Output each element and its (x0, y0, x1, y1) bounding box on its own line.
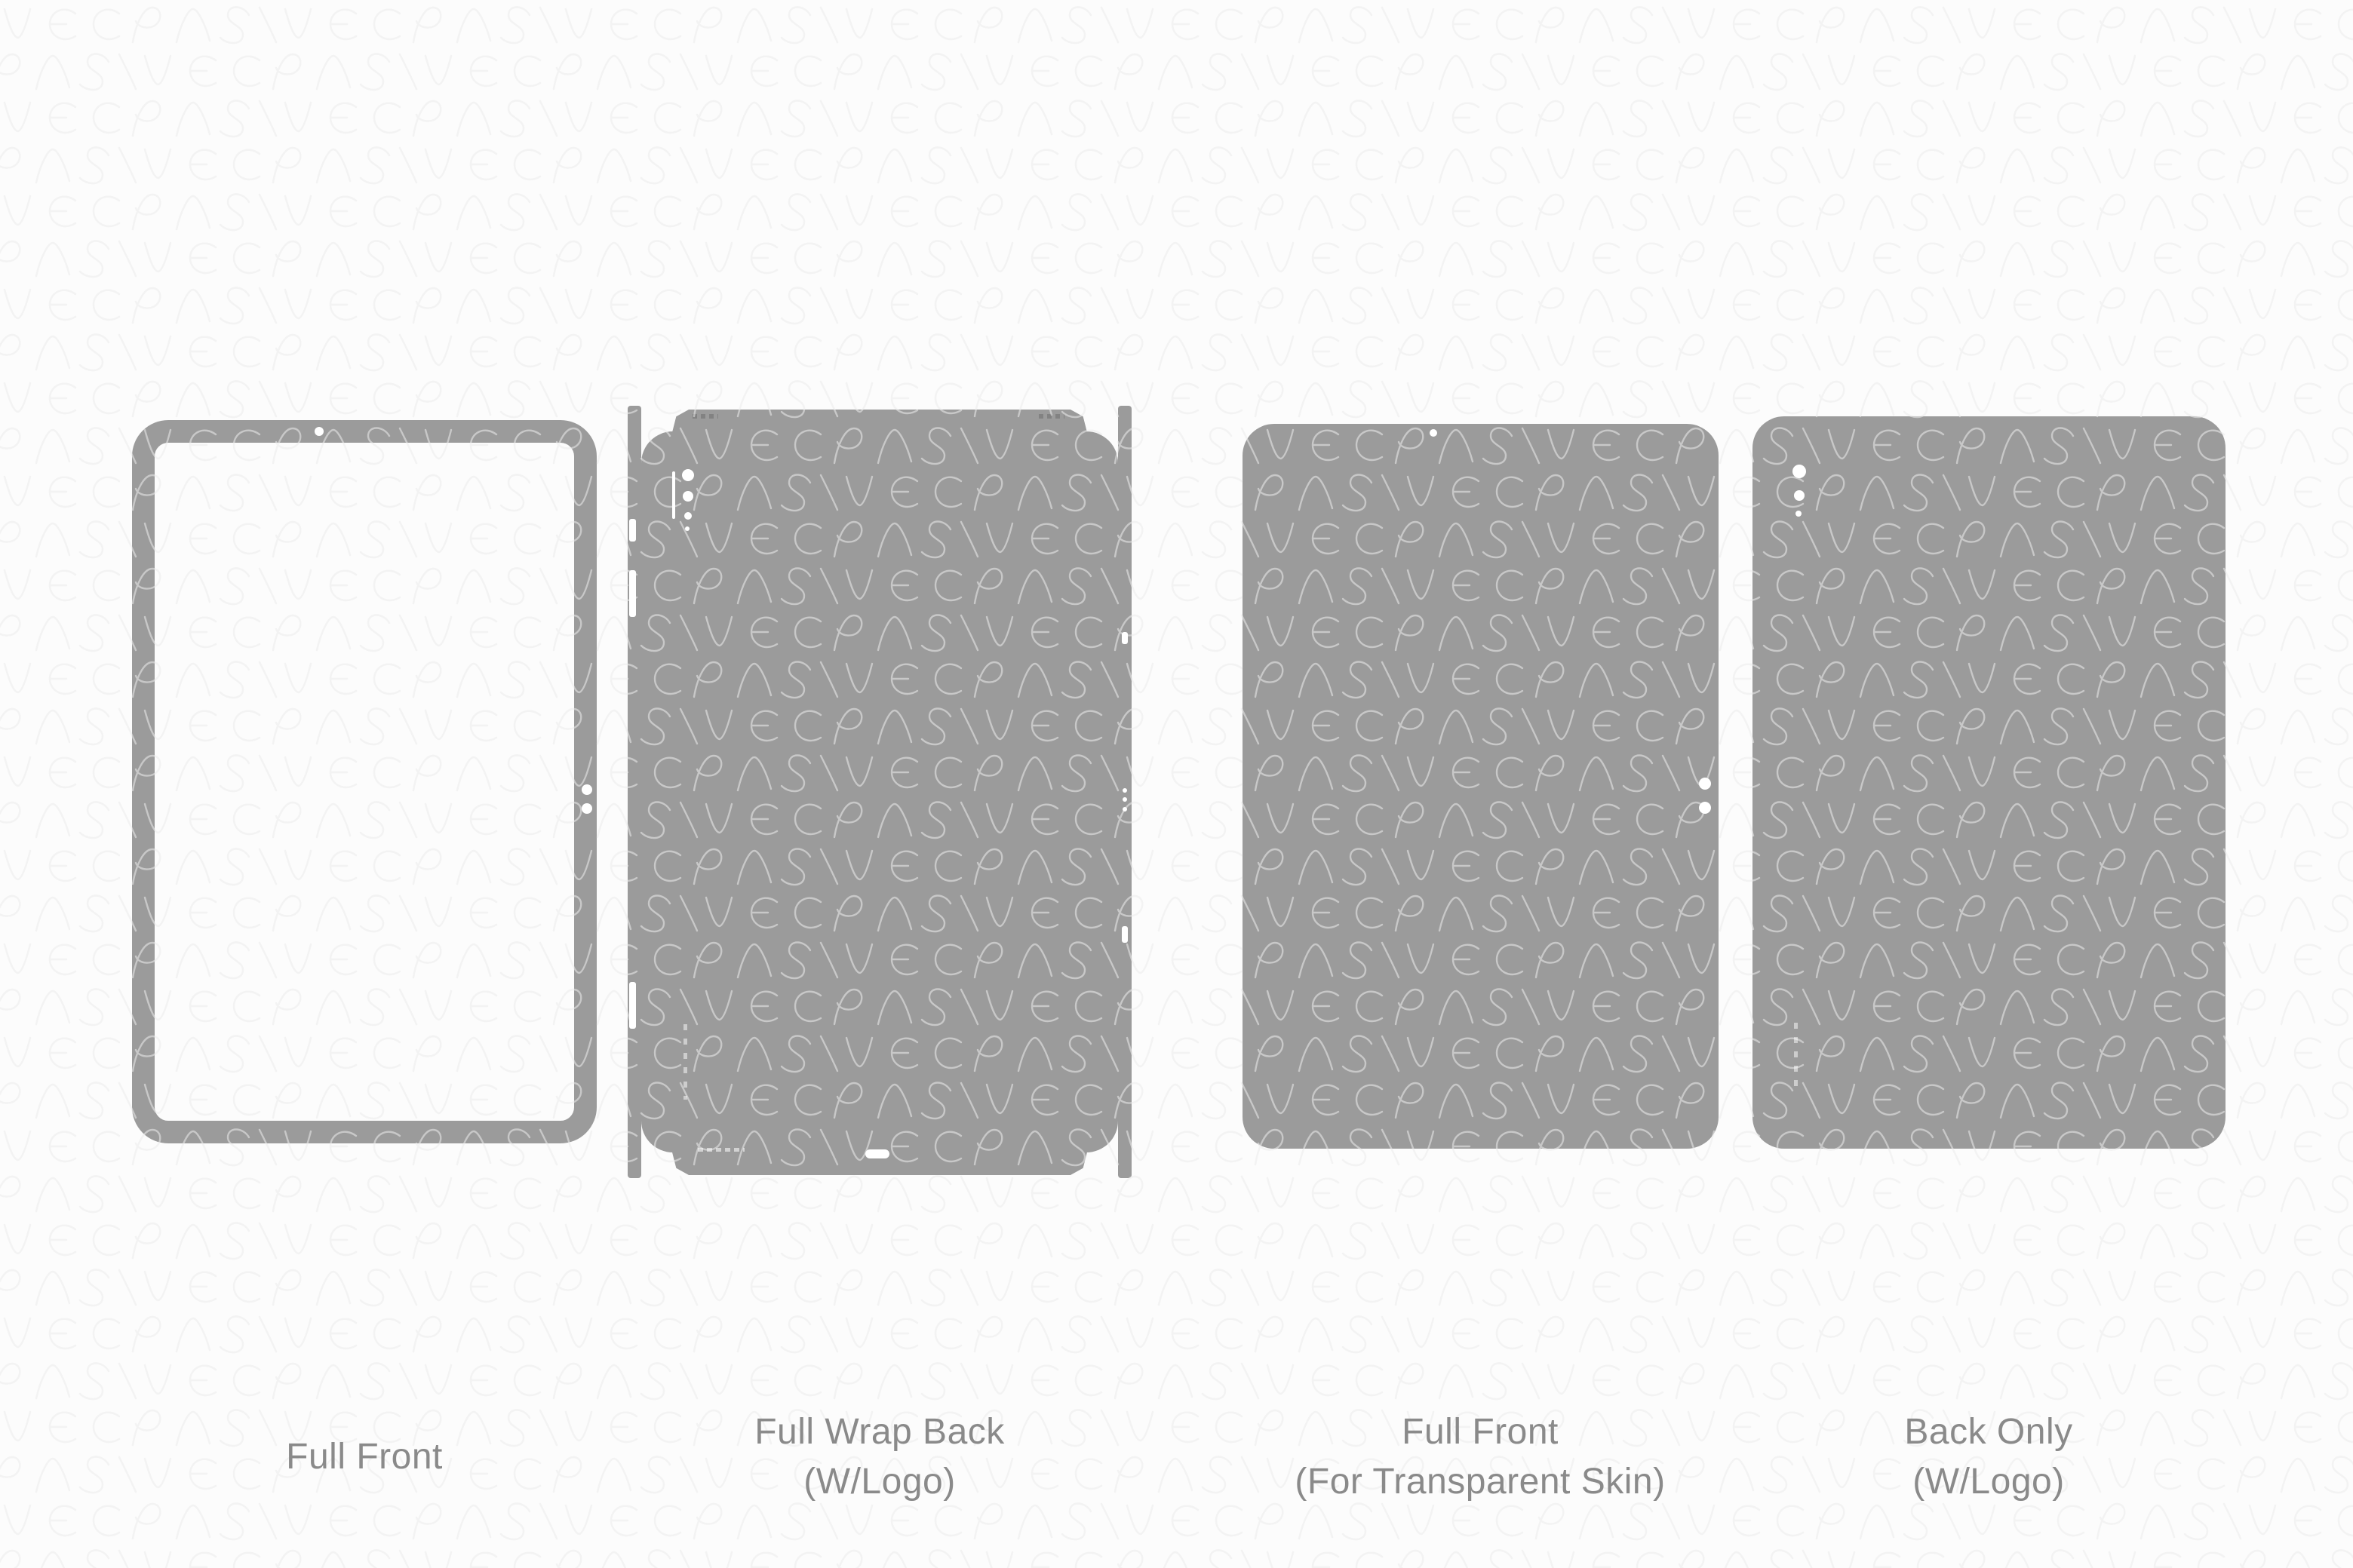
engraving-marks-vertical (1794, 1023, 1798, 1094)
right-strip-dot-2 (1123, 797, 1127, 802)
template-back-only (1752, 416, 2226, 1149)
charging-port-cutout (865, 1149, 889, 1158)
side-button-cutout-bottom (582, 803, 592, 814)
engraving-marks-bottom (698, 1148, 745, 1152)
rear-camera-cutout-3 (684, 512, 692, 520)
caption-full-front-transparent: Full Front (For Transparent Skin) (1193, 1401, 1767, 1513)
caption-full-wrap-back: Full Wrap Back (W/Logo) (593, 1401, 1166, 1513)
caption-line-1: Full Front (1402, 1407, 1559, 1457)
template-full-front-transparent (1243, 424, 1719, 1149)
engraving-marks-vertical (683, 1024, 687, 1100)
side-button-cutout-top (582, 784, 592, 795)
rear-mic-cutout (685, 526, 690, 531)
caption-line-1: Back Only (1904, 1407, 2072, 1457)
caption-line-2: (For Transparent Skin) (1295, 1457, 1665, 1507)
rear-mic-cutout (1795, 511, 1802, 517)
caption-line-2: (W/Logo) (803, 1457, 955, 1507)
front-panel-body (1243, 424, 1719, 1149)
right-strip-slot-1 (1122, 632, 1128, 644)
back-panel-body (1752, 416, 2226, 1149)
side-button-cutout-bottom (1699, 802, 1711, 814)
rear-camera-cutout-2 (1794, 490, 1805, 501)
engraving-marks-top-right (1039, 414, 1064, 419)
caption-full-front: Full Front (78, 1401, 651, 1513)
left-strip-slot-2 (629, 570, 636, 617)
engraving-marks-top-left (693, 414, 718, 419)
right-strip-dot-3 (1123, 807, 1127, 812)
rear-camera-cutout-1 (682, 469, 694, 481)
caption-line-1: Full Wrap Back (754, 1407, 1005, 1457)
front-camera-cutout (1430, 429, 1437, 437)
template-full-wrap-back (628, 406, 1132, 1178)
right-strip-slot-2 (1122, 926, 1128, 943)
left-strip-slot-3 (629, 982, 636, 1029)
caption-line-1: Full Front (286, 1432, 443, 1482)
front-camera-cutout (315, 427, 324, 436)
caption-line-2: (W/Logo) (1912, 1457, 2064, 1507)
tablet-front-bezel-outline (132, 420, 597, 1143)
right-strip-dot-1 (1123, 788, 1127, 793)
back-panel-body (641, 431, 1118, 1152)
rear-camera-cutout-1 (1792, 465, 1806, 478)
template-full-front (132, 420, 597, 1143)
side-button-cutout-top (1699, 778, 1711, 790)
camera-flash-line-cutout (672, 471, 675, 519)
left-strip-slot-1 (629, 519, 636, 542)
rear-camera-cutout-2 (683, 491, 693, 502)
caption-back-only: Back Only (W/Logo) (1702, 1401, 2275, 1513)
